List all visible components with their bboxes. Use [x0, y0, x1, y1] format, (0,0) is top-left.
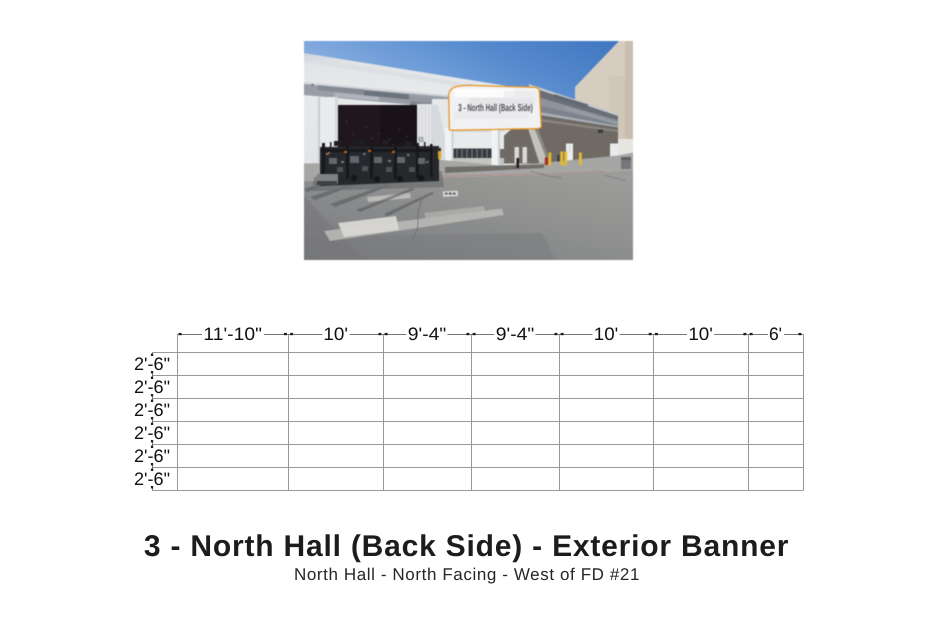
- svg-text:9'-4": 9'-4": [496, 325, 535, 344]
- svg-text:11'-10": 11'-10": [203, 325, 262, 344]
- svg-text:3 - North Hall (Back Side): 3 - North Hall (Back Side): [458, 103, 533, 114]
- svg-text:10': 10': [323, 325, 348, 344]
- svg-text:6': 6': [769, 325, 782, 344]
- svg-text:2'-6": 2'-6": [134, 469, 170, 489]
- svg-text:2'-6": 2'-6": [134, 446, 170, 466]
- svg-text:2'-6": 2'-6": [134, 400, 170, 420]
- svg-text:10': 10': [688, 325, 713, 344]
- svg-text:9'-4": 9'-4": [408, 325, 447, 344]
- svg-text:10': 10': [594, 325, 619, 344]
- svg-text:2'-6": 2'-6": [134, 423, 170, 443]
- svg-text:2'-6": 2'-6": [134, 377, 170, 397]
- svg-text:2'-6": 2'-6": [134, 354, 170, 374]
